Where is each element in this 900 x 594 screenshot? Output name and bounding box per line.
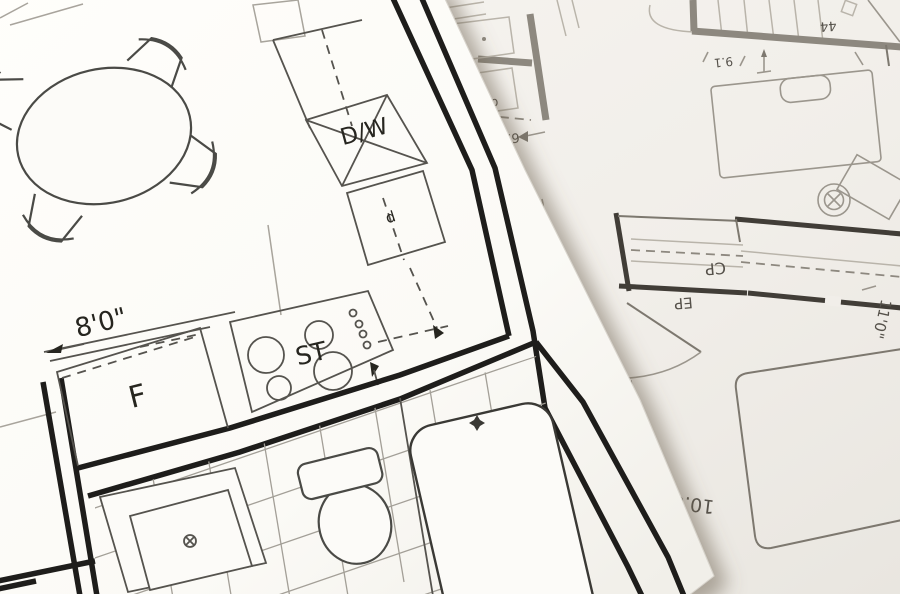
closet-label: CP	[704, 258, 727, 279]
stair-note-label: 44	[819, 17, 837, 33]
dim-9-1-label: 9.1	[713, 54, 733, 70]
blueprint-photo: 44 9.1	[0, 0, 900, 594]
panel-label: EP	[673, 293, 693, 313]
blueprint-scene: 44 9.1	[0, 0, 900, 594]
